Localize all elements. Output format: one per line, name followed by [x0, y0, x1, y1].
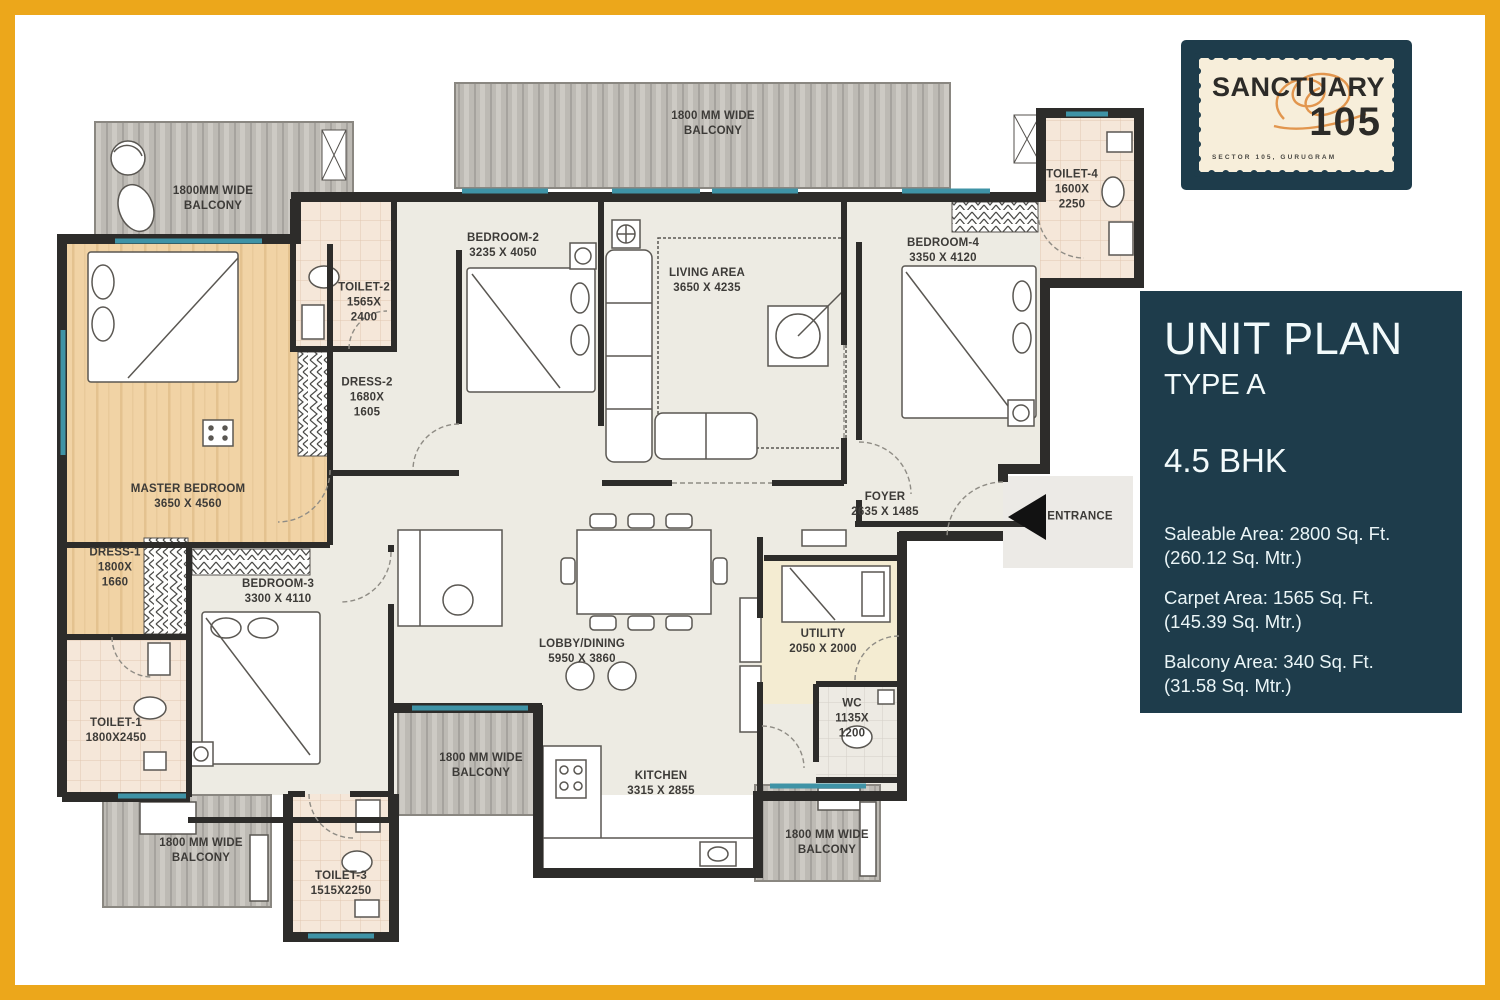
label-master-bedroom: MASTER BEDROOM 3650 X 4560	[131, 482, 246, 512]
brand-stamp: SANCTUARY 105 SECTOR 105, GURUGRAM	[1199, 58, 1394, 172]
label-kitchen: KITCHEN 3315 X 2855	[627, 769, 694, 799]
label-toilet-2: TOILET-2 1565X 2400	[338, 281, 390, 326]
label-bedroom-3: BEDROOM-3 3300 X 4110	[242, 577, 314, 607]
label-bedroom-2: BEDROOM-2 3235 X 4050	[467, 231, 539, 261]
label-dress-2: DRESS-2 1680X 1605	[341, 376, 392, 421]
label-utility: UTILITY 2050 X 2000	[789, 627, 856, 657]
label-balcony-mid: 1800 MM WIDE BALCONY	[439, 751, 523, 781]
label-balcony-top: 1800 MM WIDE BALCONY	[671, 109, 755, 139]
label-wc: WC 1135X 1200	[835, 697, 869, 742]
brand-tagline: SECTOR 105, GURUGRAM	[1212, 154, 1336, 161]
label-balcony-bottom-right: 1800 MM WIDE BALCONY	[785, 828, 869, 858]
label-living-area: LIVING AREA 3650 X 4235	[669, 266, 745, 296]
label-toilet-4: TOILET-4 1600X 2250	[1046, 168, 1098, 213]
brand-number: 105	[1309, 100, 1382, 145]
brand-logo: SANCTUARY 105 SECTOR 105, GURUGRAM	[1181, 40, 1412, 190]
panel-title: UNIT PLAN	[1164, 313, 1462, 365]
label-entrance: ENTRANCE	[1047, 510, 1113, 525]
label-toilet-3: TOILET-3 1515X2250	[311, 869, 372, 899]
saleable-area: Saleable Area: 2800 Sq. Ft. (260.12 Sq. …	[1164, 522, 1462, 571]
carpet-area: Carpet Area: 1565 Sq. Ft. (145.39 Sq. Mt…	[1164, 586, 1462, 635]
label-bedroom-4: BEDROOM-4 3350 X 4120	[907, 236, 979, 266]
label-toilet-1: TOILET-1 1800X2450	[86, 716, 147, 746]
panel-type: TYPE A	[1164, 369, 1462, 402]
balcony-area: Balcony Area: 340 Sq. Ft. (31.58 Sq. Mtr…	[1164, 650, 1462, 699]
panel-bhk: 4.5 BHK	[1164, 442, 1462, 480]
label-balcony-top-left: 1800MM WIDE BALCONY	[173, 184, 253, 214]
unit-info-panel: UNIT PLAN TYPE A 4.5 BHK Saleable Area: …	[1140, 291, 1462, 713]
label-dress-1: DRESS-1 1800X 1660	[89, 546, 140, 591]
label-foyer: FOYER 2635 X 1485	[851, 490, 918, 520]
label-balcony-bottom-left: 1800 MM WIDE BALCONY	[159, 836, 243, 866]
panel-areas: Saleable Area: 2800 Sq. Ft. (260.12 Sq. …	[1164, 522, 1462, 698]
brand-name: SANCTUARY	[1212, 72, 1385, 103]
label-lobby-dining: LOBBY/DINING 5950 X 3860	[539, 637, 625, 667]
